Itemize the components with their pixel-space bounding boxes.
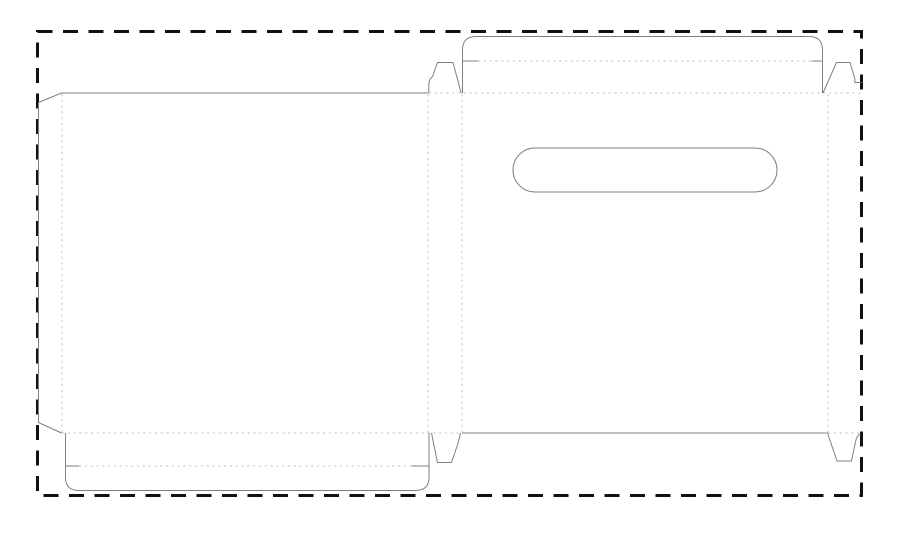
dieline-drawing-area (0, 0, 900, 537)
left-panel-and-glue-flap-outline (39, 93, 429, 433)
bottom-tuck-flap-outline (66, 433, 430, 491)
cut-lines-group (39, 37, 862, 491)
fold-lines-group (62, 61, 862, 466)
top-center-dust-tab (429, 63, 461, 94)
handle-slot-cutout (513, 148, 777, 192)
sheet-boundary-dashed-rect (38, 32, 862, 496)
bottom-right-dust-tab (828, 433, 861, 461)
top-tuck-flap-outline (463, 37, 823, 94)
top-right-dust-tab (823, 63, 862, 94)
bottom-center-dust-tab (432, 433, 461, 463)
dieline-svg (0, 0, 900, 537)
